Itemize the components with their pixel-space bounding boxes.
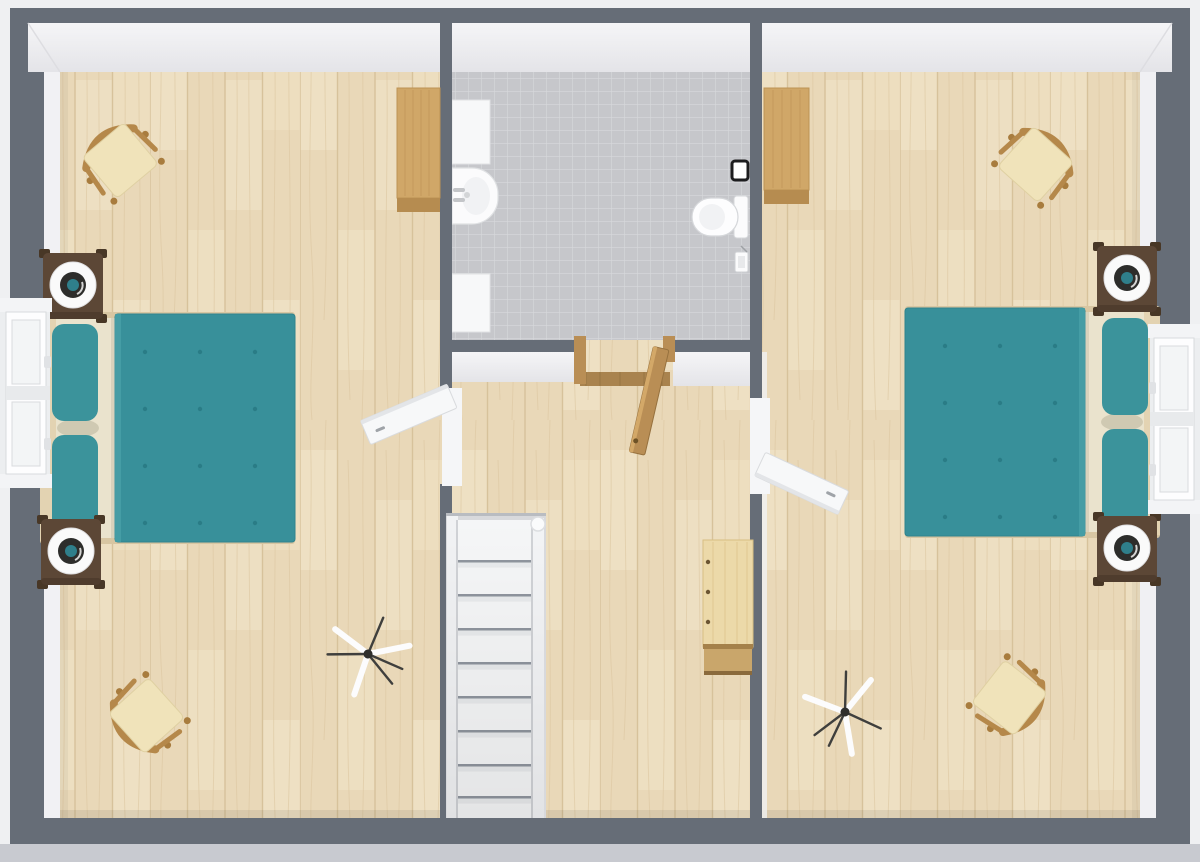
wardrobe-shadow-edge [397, 198, 440, 212]
wardrobe-body [397, 88, 440, 198]
right-bedroom-wardrobe [764, 88, 809, 204]
flush-plate [732, 161, 748, 180]
bathroom-south-wall-left [440, 340, 580, 352]
staircase [446, 513, 546, 818]
floor-plan-svg [0, 0, 1200, 862]
desk-top [703, 540, 753, 647]
divider-wall-left-upper [440, 20, 452, 388]
desk-handle [706, 620, 710, 624]
door-frame-post [574, 336, 586, 384]
desk-edge [703, 644, 753, 649]
left-bedroom-wardrobe [397, 88, 440, 212]
top-wall-face [28, 23, 1172, 72]
faucet [453, 188, 465, 192]
vanity-cabinet-bottom [452, 274, 490, 332]
toilet-seat [699, 204, 725, 230]
left-bedroom-bed [40, 312, 295, 544]
wardrobe-body [764, 88, 809, 190]
hallway-desk [703, 540, 753, 675]
faucet [453, 198, 465, 202]
bathroom-wall-face-right [673, 352, 750, 386]
stair-top-edge [446, 513, 546, 516]
nightstand-left-bottom [37, 515, 105, 589]
nightstand-right-bottom [1093, 512, 1161, 586]
left-bedroom-window [0, 298, 52, 488]
sink [452, 168, 498, 224]
stair-depth-shade [447, 520, 544, 818]
nightstand-right-top [1093, 242, 1161, 316]
vanity-cabinet-top [452, 100, 490, 164]
bathroom-south-wall-right [671, 340, 762, 352]
bathroom-wall-face-left [452, 352, 578, 382]
exterior-apron [0, 844, 1200, 862]
right-bedroom-window [1148, 324, 1200, 514]
floor-plan-canvas [0, 0, 1200, 862]
wardrobe-shadow-edge [764, 190, 809, 204]
right-bedroom-bed [905, 306, 1160, 538]
desk-handle [706, 590, 710, 594]
toilet [692, 196, 748, 238]
floor-shadow-bottom [60, 810, 1140, 818]
desk-shelf-edge [704, 671, 752, 675]
faucet-spout [464, 192, 470, 198]
desk-handle [706, 560, 710, 564]
